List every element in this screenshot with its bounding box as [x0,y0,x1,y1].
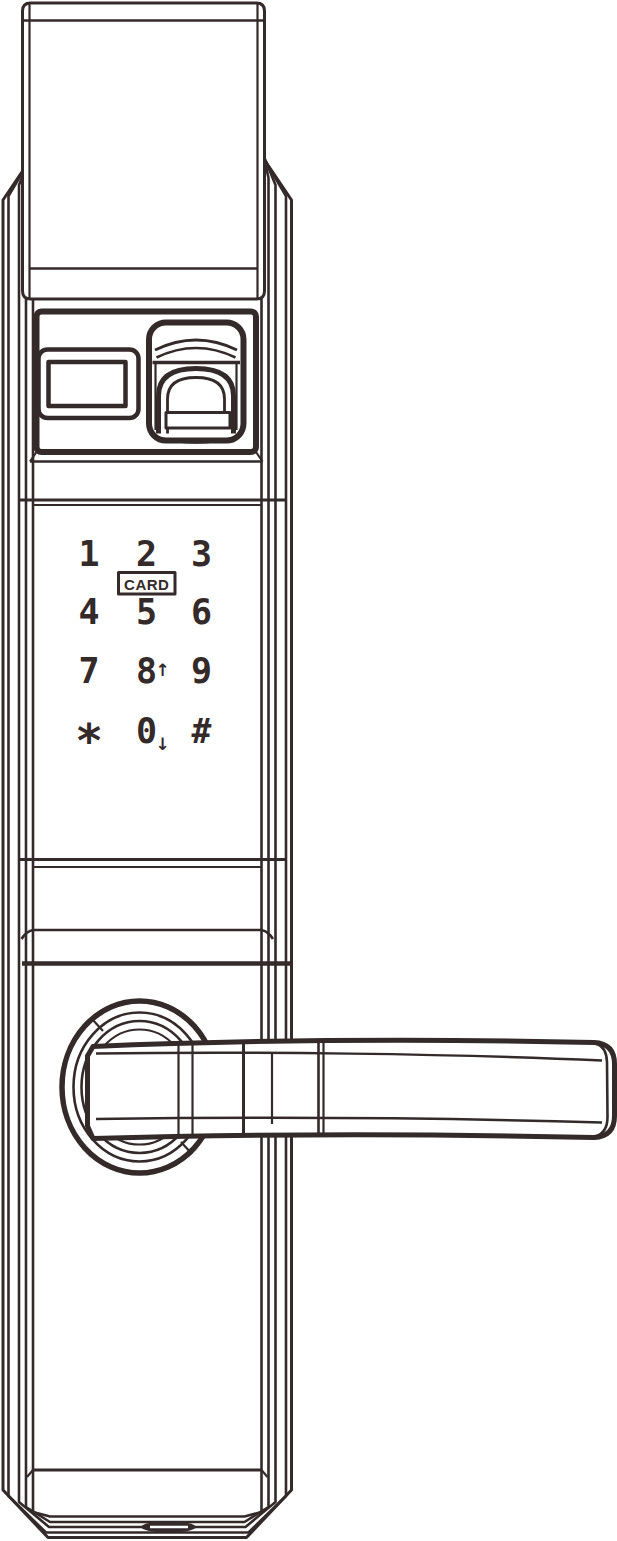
handle-lever[interactable] [88,1040,615,1138]
up-arrow-icon: ↑ [155,660,169,680]
fingerprint-module[interactable] [149,323,244,443]
fingerprint-sensor-base [166,413,230,429]
card-label: CARD [124,576,169,593]
key-1[interactable]: 1 [78,534,99,574]
key-0[interactable]: 0 [136,711,157,751]
key-9[interactable]: 9 [191,651,212,691]
key-5[interactable]: 5 [136,592,157,632]
card-reader-zone[interactable]: CARD [119,573,176,595]
key-6[interactable]: 6 [191,592,212,632]
key-hash[interactable]: # [192,712,212,751]
key-3[interactable]: 3 [191,534,212,574]
key-8[interactable]: 8 [136,651,157,691]
sensor-panel [30,312,263,462]
top-block [23,3,265,299]
key-star[interactable]: * [75,714,103,768]
drawing-canvas: 1 2 3 CARD 4 5 6 7 8 ↑ 9 * 0 ↓ # [0,0,617,1541]
key-4[interactable]: 4 [78,592,99,632]
down-arrow-icon: ↓ [155,734,169,754]
door-lock-line-drawing: 1 2 3 CARD 4 5 6 7 8 ↑ 9 * 0 ↓ # [0,0,617,1541]
key-2[interactable]: 2 [136,534,157,574]
keypad-panel: 1 2 3 CARD 4 5 6 7 8 ↑ 9 * 0 ↓ # [19,500,286,867]
key-7[interactable]: 7 [78,651,99,691]
handle[interactable] [62,1001,615,1173]
lever-outline[interactable] [88,1040,615,1138]
collar-dividers [22,930,292,964]
top-block-outline [23,3,265,299]
